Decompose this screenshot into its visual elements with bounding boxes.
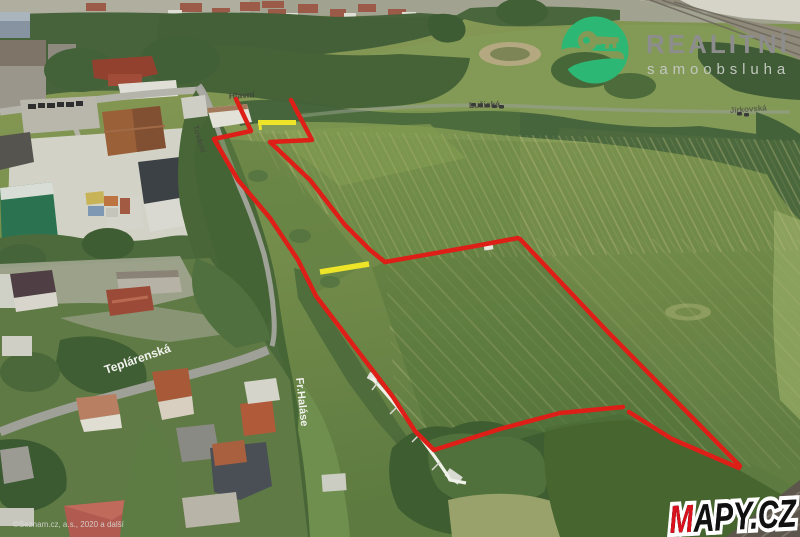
- svg-text:Hlavní: Hlavní: [229, 90, 256, 101]
- svg-text:M: M: [668, 498, 695, 537]
- svg-text:Lužická: Lužická: [469, 99, 501, 110]
- svg-text:samoobsluha: samoobsluha: [647, 61, 790, 78]
- svg-text:REALITNÍ: REALITNÍ: [646, 29, 790, 59]
- svg-text:©Seznam.cz, a.s., 2020 a další: ©Seznam.cz, a.s., 2020 a další: [13, 520, 125, 529]
